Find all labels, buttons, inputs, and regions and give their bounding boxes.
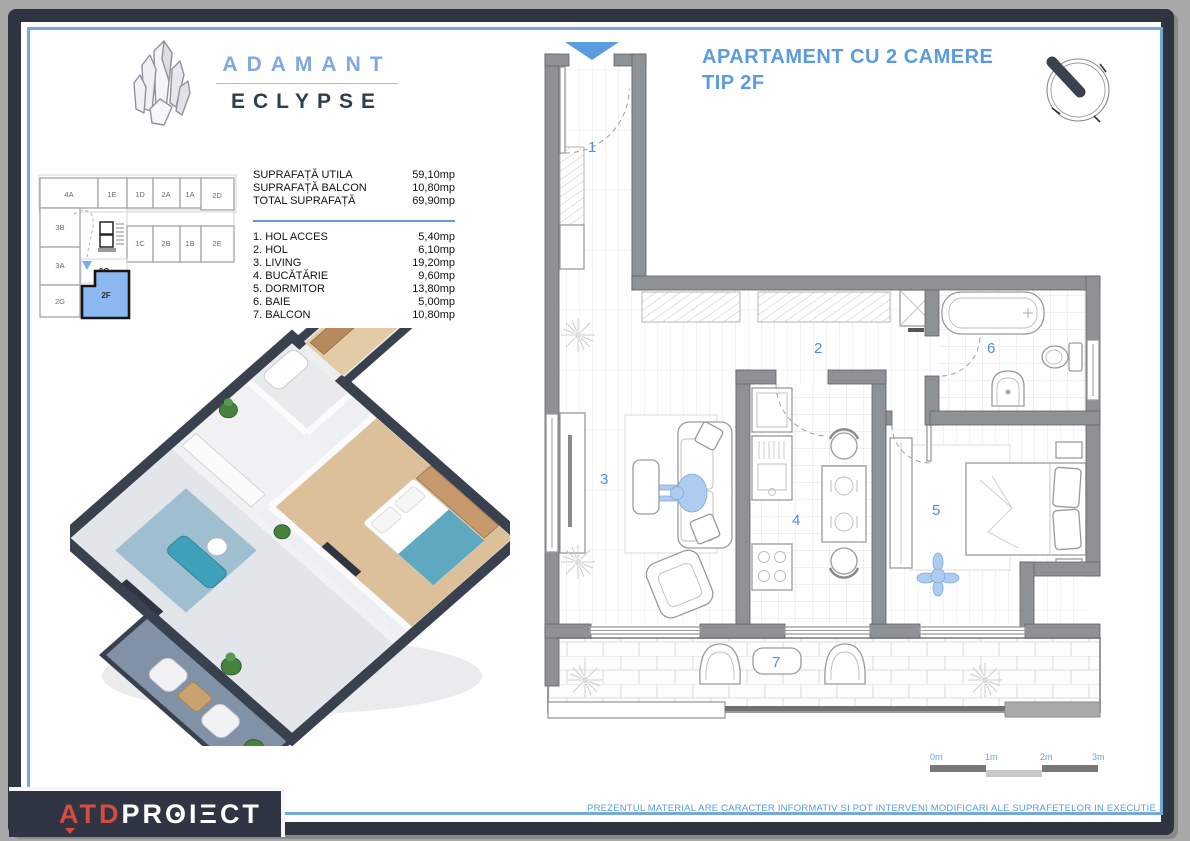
table-row: SUPRAFAȚĂ BALCON10,80mp (253, 182, 455, 195)
logo-triangle-icon (65, 828, 75, 834)
floor-balcony (548, 638, 1100, 712)
unit-label: 4A (64, 190, 73, 199)
area-value: 6,10mp (418, 244, 455, 257)
brand-divider (216, 83, 398, 84)
balcony-chair (825, 644, 865, 684)
scale-segment (1042, 765, 1098, 772)
scale-label: 2m (1040, 752, 1053, 762)
unit-label: 2E (212, 239, 221, 248)
disclaimer-text: PREZENTUL MATERIAL ARE CARACTER INFORMAT… (587, 803, 1156, 814)
unit-label: 1A (185, 190, 194, 199)
dining-chair (830, 429, 858, 459)
coffee-table (633, 460, 659, 514)
unit-label: 3A (55, 261, 64, 270)
unit-label: 2D (212, 191, 222, 200)
entry-door-leaf (560, 67, 565, 153)
table-row: 6. BAIE5,00mp (253, 296, 455, 309)
room-number-1: 1 (588, 139, 596, 156)
room-number-3: 3 (600, 471, 608, 488)
highlighted-unit-label: 2F (101, 291, 110, 300)
table-row: 5. DORMITOR13,80mp (253, 283, 455, 296)
room-number-2: 2 (814, 340, 822, 357)
brochure-page: { "logo": { "brand_top": "ADAMANT", "bra… (0, 0, 1190, 841)
architect-logo-box: ATDPROIΞCT (9, 787, 285, 837)
area-value: 59,10mp (412, 169, 455, 182)
area-label: SUPRAFAȚĂ BALCON (253, 182, 367, 195)
dining-chair (830, 548, 858, 578)
logo-e-bars: Ξ (200, 799, 220, 829)
balcony-chair (700, 644, 740, 684)
planter-box (548, 702, 725, 718)
logo-o-dot: O (165, 801, 189, 828)
table-row: 4. BUCĂTĂRIE9,60mp (253, 270, 455, 283)
area-label: 5. DORMITOR (253, 283, 325, 296)
balcony-railing (725, 706, 1005, 711)
room-number-4: 4 (792, 512, 800, 529)
architect-logo: ATDPROIΞCT (59, 801, 262, 828)
tv (568, 435, 572, 527)
room-number-7: 7 (772, 654, 780, 671)
floor-plan-2d: 1 2 3 4 5 6 7 (540, 40, 1110, 730)
entry-cabinet (560, 225, 584, 269)
unit-label: 1E (107, 190, 116, 199)
unit-label: 1D (135, 190, 145, 199)
tv-cabinet (560, 413, 585, 553)
table-row: 3. LIVING19,20mp (253, 257, 455, 270)
hall-wardrobe (642, 292, 740, 322)
building-key-plan: 4A 1E 1D 2A 1A 2D 3B 1C 2B 1B 2E 3A 2C 2… (38, 162, 238, 330)
scale-bar: 0m 1m 2m 3m (930, 752, 1102, 780)
area-label: 7. BALCON (253, 309, 310, 322)
room-number-6: 6 (987, 340, 995, 357)
table-row: TOTAL SUPRAFAȚĂ69,90mp (253, 195, 455, 208)
brand-bottom: ECLYPSE (212, 90, 402, 114)
brand-text: ADAMANT ECLYPSE (212, 53, 402, 114)
table-row: 1. HOL ACCES5,40mp (253, 231, 455, 244)
kitchen-fridge (752, 388, 792, 432)
bed (966, 463, 1086, 555)
scale-segment (930, 765, 986, 772)
balcony-slab (1005, 702, 1100, 717)
unit-arrow-icon (82, 261, 92, 270)
brand-top: ADAMANT (212, 53, 402, 77)
unit-label: 2B (161, 239, 170, 248)
bathroom-sink (992, 371, 1024, 406)
area-value: 10,80mp (412, 182, 455, 195)
area-value: 13,80mp (412, 283, 455, 296)
unit-label: 2G (55, 297, 65, 306)
toilet (1042, 343, 1082, 371)
area-label: 2. HOL (253, 244, 288, 257)
crystal-logo-icon (120, 39, 198, 127)
area-label: TOTAL SUPRAFAȚĂ (253, 195, 356, 208)
area-value: 9,60mp (418, 270, 455, 283)
kitchen-sink (752, 436, 792, 500)
area-value: 10,80mp (412, 309, 455, 322)
table-divider (253, 220, 455, 222)
room-number-5: 5 (932, 502, 940, 519)
nightstand (1056, 442, 1082, 458)
area-label: 3. LIVING (253, 257, 301, 270)
apartment-3d-render (70, 328, 510, 746)
elevator-icon (98, 222, 124, 252)
dining-table (822, 466, 866, 542)
developer-logo: ADAMANT ECLYPSE (120, 38, 410, 128)
scale-label: 3m (1092, 752, 1105, 762)
bedroom-door-leaf (927, 425, 931, 461)
area-value: 19,20mp (412, 257, 455, 270)
logo-atd: ATD (59, 799, 122, 829)
scale-label: 0m (930, 752, 943, 762)
area-value: 5,00mp (418, 296, 455, 309)
area-value: 5,40mp (418, 231, 455, 244)
kitchen-stove (752, 544, 792, 590)
unit-label: 2A (161, 190, 170, 199)
bathtub (942, 292, 1044, 334)
area-label: 4. BUCĂTĂRIE (253, 270, 328, 283)
entrance-arrow-icon (565, 42, 619, 60)
unit-label: 1C (135, 239, 145, 248)
area-table: SUPRAFAȚĂ UTILA59,10mp SUPRAFAȚĂ BALCON1… (253, 169, 455, 322)
scale-segment (986, 770, 1042, 777)
area-label: 1. HOL ACCES (253, 231, 328, 244)
area-label: SUPRAFAȚĂ UTILA (253, 169, 353, 182)
area-label: 6. BAIE (253, 296, 290, 309)
table-row: 7. BALCON10,80mp (253, 309, 455, 322)
unit-label: 1B (185, 239, 194, 248)
entry-wardrobe (560, 147, 584, 225)
area-value: 69,90mp (412, 195, 455, 208)
hall-wardrobe (758, 292, 890, 322)
scale-label: 1m (985, 752, 998, 762)
table-row: SUPRAFAȚĂ UTILA59,10mp (253, 169, 455, 182)
unit-label: 3B (55, 223, 64, 232)
table-row: 2. HOL6,10mp (253, 244, 455, 257)
